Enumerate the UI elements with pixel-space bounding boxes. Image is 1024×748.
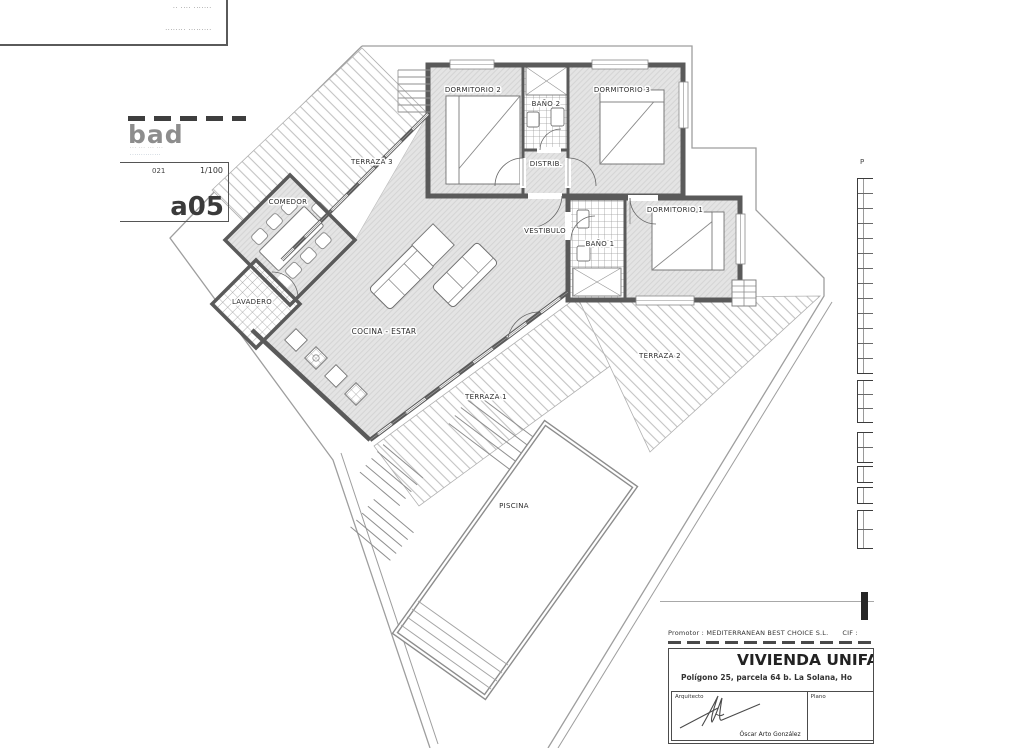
- promotor-underline-dashes: [668, 641, 874, 644]
- stamp-code: 021: [152, 167, 165, 175]
- room-label-terraza-2: TERRAZA 2: [638, 352, 681, 360]
- stamp-contact-line-1: ··· ··· ··· ···: [130, 146, 163, 151]
- room-label-dormitorio-3: DORMITORIO 3: [594, 86, 650, 94]
- side-table-6: [857, 510, 873, 549]
- stamp-scale: 1/100: [200, 166, 223, 175]
- room-label-cocina-estar: COCINA - ESTAR: [352, 327, 417, 336]
- project-address: Polígono 25, parcela 64 b. La Solana, Ho: [681, 673, 852, 682]
- logo-text: bad: [128, 120, 184, 149]
- bed-dormitorio-1: [652, 212, 724, 270]
- room-label-bano-2: BAÑO 2: [532, 99, 561, 108]
- bed-dormitorio-3: [600, 90, 664, 164]
- terrace-2-area: [578, 296, 820, 452]
- side-ladder: [732, 280, 756, 306]
- promotor-text: Promotor : MEDITERRANEAN BEST CHOICE S.L…: [668, 629, 828, 637]
- architect-name: Óscar Arto González: [739, 731, 800, 738]
- room-label-piscina: PISCINA: [499, 502, 529, 510]
- logo-mark-fragment: [861, 592, 868, 620]
- room-label-vestibulo: VESTIBULO: [524, 227, 566, 235]
- room-label-dormitorio-2: DORMITORIO 2: [445, 86, 501, 94]
- plano-label: Plano: [811, 694, 826, 700]
- architect-cell: Arquitecto Óscar Arto González: [671, 691, 808, 741]
- side-table-3: [857, 432, 873, 463]
- promotor-line: Promotor : MEDITERRANEAN BEST CHOICE S.L…: [668, 629, 874, 637]
- room-label-bano-1: BAÑO 1: [586, 239, 615, 248]
- note-line-2: ········ ·········: [165, 27, 212, 33]
- room-label-distrib: DISTRIB.: [530, 160, 563, 168]
- side-table-5: [857, 487, 873, 504]
- side-table-4: [857, 466, 873, 483]
- side-table-1: [857, 178, 873, 374]
- stamp-box: 021 1/100 a05: [120, 162, 229, 222]
- room-label-terraza-1: TERRAZA 1: [464, 393, 507, 401]
- note-line-1: ·· ···· ·······: [173, 5, 212, 11]
- stamp-sheet-number: a05: [170, 194, 224, 220]
- scanned-floor-plan-sheet: TERRAZA 3 DORMITORIO 2 BAÑO 2 DORMITORIO…: [0, 0, 1024, 748]
- room-label-terraza-3: TERRAZA 3: [350, 158, 393, 166]
- note-box: ·· ···· ······· ········ ·········: [0, 0, 228, 46]
- room-label-lavadero: LAVADERO: [232, 298, 272, 306]
- project-title: VIVIENDA UNIFAMI: [737, 651, 874, 669]
- bed-dormitorio-2: [446, 96, 520, 184]
- plano-cell: Plano: [808, 691, 874, 741]
- side-table-2: [857, 380, 873, 423]
- cif-label: CIF :: [842, 629, 857, 637]
- title-block: VIVIENDA UNIFAMI Polígono 25, parcela 64…: [668, 648, 874, 744]
- room-label-dormitorio-1: DORMITORIO 1: [647, 206, 703, 214]
- architect-signature: [672, 692, 772, 730]
- stamp-contact-line-2: ··············: [130, 153, 161, 158]
- room-label-comedor: COMEDOR: [269, 198, 308, 206]
- side-table-header-fragment: P: [860, 158, 864, 166]
- title-block-top-rule: [660, 601, 874, 602]
